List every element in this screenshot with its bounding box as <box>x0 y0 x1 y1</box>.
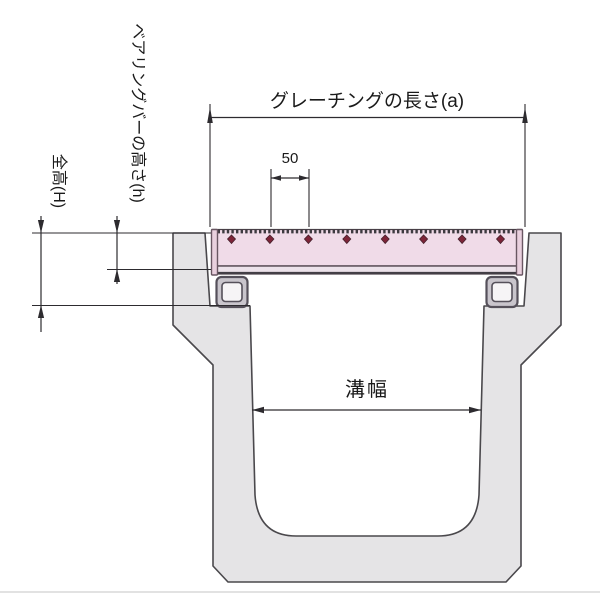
grating-end-plate-right <box>517 230 523 276</box>
dim-groove-width-arrow-left <box>252 407 264 413</box>
label-bearing-bar-height: ベアリングバーの高さ(h) <box>127 6 146 220</box>
support-tube-left-inner <box>222 283 242 302</box>
dim-pitch-50 <box>271 169 309 227</box>
grating-bottom-strip <box>213 267 522 272</box>
dim-groove-width-arrow-right <box>469 407 481 413</box>
label-groove-width: 溝幅 <box>317 379 417 403</box>
dim-grating-length-tick-right <box>522 107 528 123</box>
grating-section-drawing: ベアリングバーの高さ(h) 全高(H) グレーチングの長さ(a) 50 溝幅 <box>0 0 600 600</box>
dim-h-arrow-top <box>114 220 120 233</box>
dim-grating-length <box>207 104 528 227</box>
label-total-height: 全高(H) <box>48 144 67 218</box>
dim-pitch-arrow-left <box>271 175 281 181</box>
drawing-canvas <box>0 0 600 600</box>
support-frame <box>217 277 518 307</box>
dim-bearing-bar-height <box>114 216 120 284</box>
dim-groove-width <box>252 407 481 413</box>
dim-h-arrow-bottom <box>114 269 120 282</box>
dim-pitch-arrow-right <box>299 175 309 181</box>
grating-section <box>212 230 523 276</box>
label-grating-length: グレーチングの長さ(a) <box>217 92 517 114</box>
label-crossbar-pitch: 50 <box>269 151 311 169</box>
dim-H-arrow-top <box>38 220 44 233</box>
support-tube-right-inner <box>492 283 512 302</box>
dim-grating-length-tick-left <box>207 107 213 123</box>
dim-H-arrow-bottom <box>38 305 44 318</box>
grating-end-plate-left <box>212 230 218 276</box>
